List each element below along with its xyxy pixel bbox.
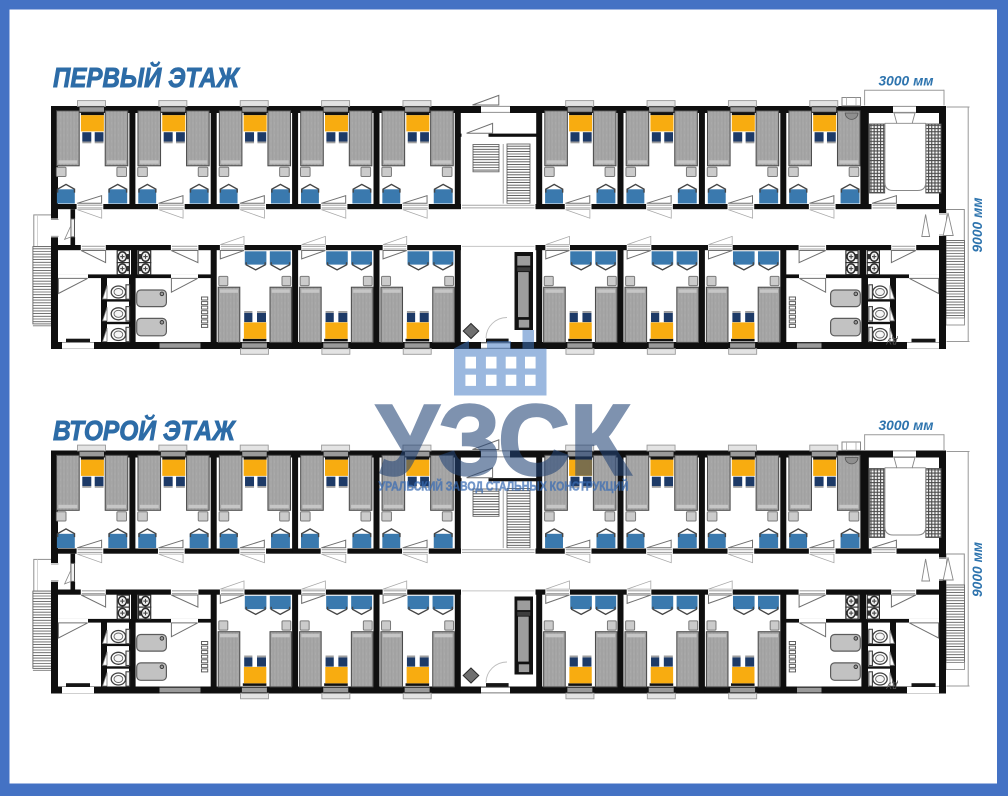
svg-text:УРАЛЬСКИЙ ЗАВОД СТАЛЬНЫХ КОНСТ: УРАЛЬСКИЙ ЗАВОД СТАЛЬНЫХ КОНСТРУКЦИЙ — [379, 479, 629, 494]
svg-text:ВТОРОЙ ЭТАЖ: ВТОРОЙ ЭТАЖ — [53, 414, 236, 446]
svg-text:3000 мм: 3000 мм — [879, 73, 935, 89]
svg-text:9000 мм: 9000 мм — [969, 197, 985, 253]
svg-text:ДУ: ДУ — [886, 336, 898, 346]
svg-text:ПЕРВЫЙ ЭТАЖ: ПЕРВЫЙ ЭТАЖ — [53, 61, 240, 93]
